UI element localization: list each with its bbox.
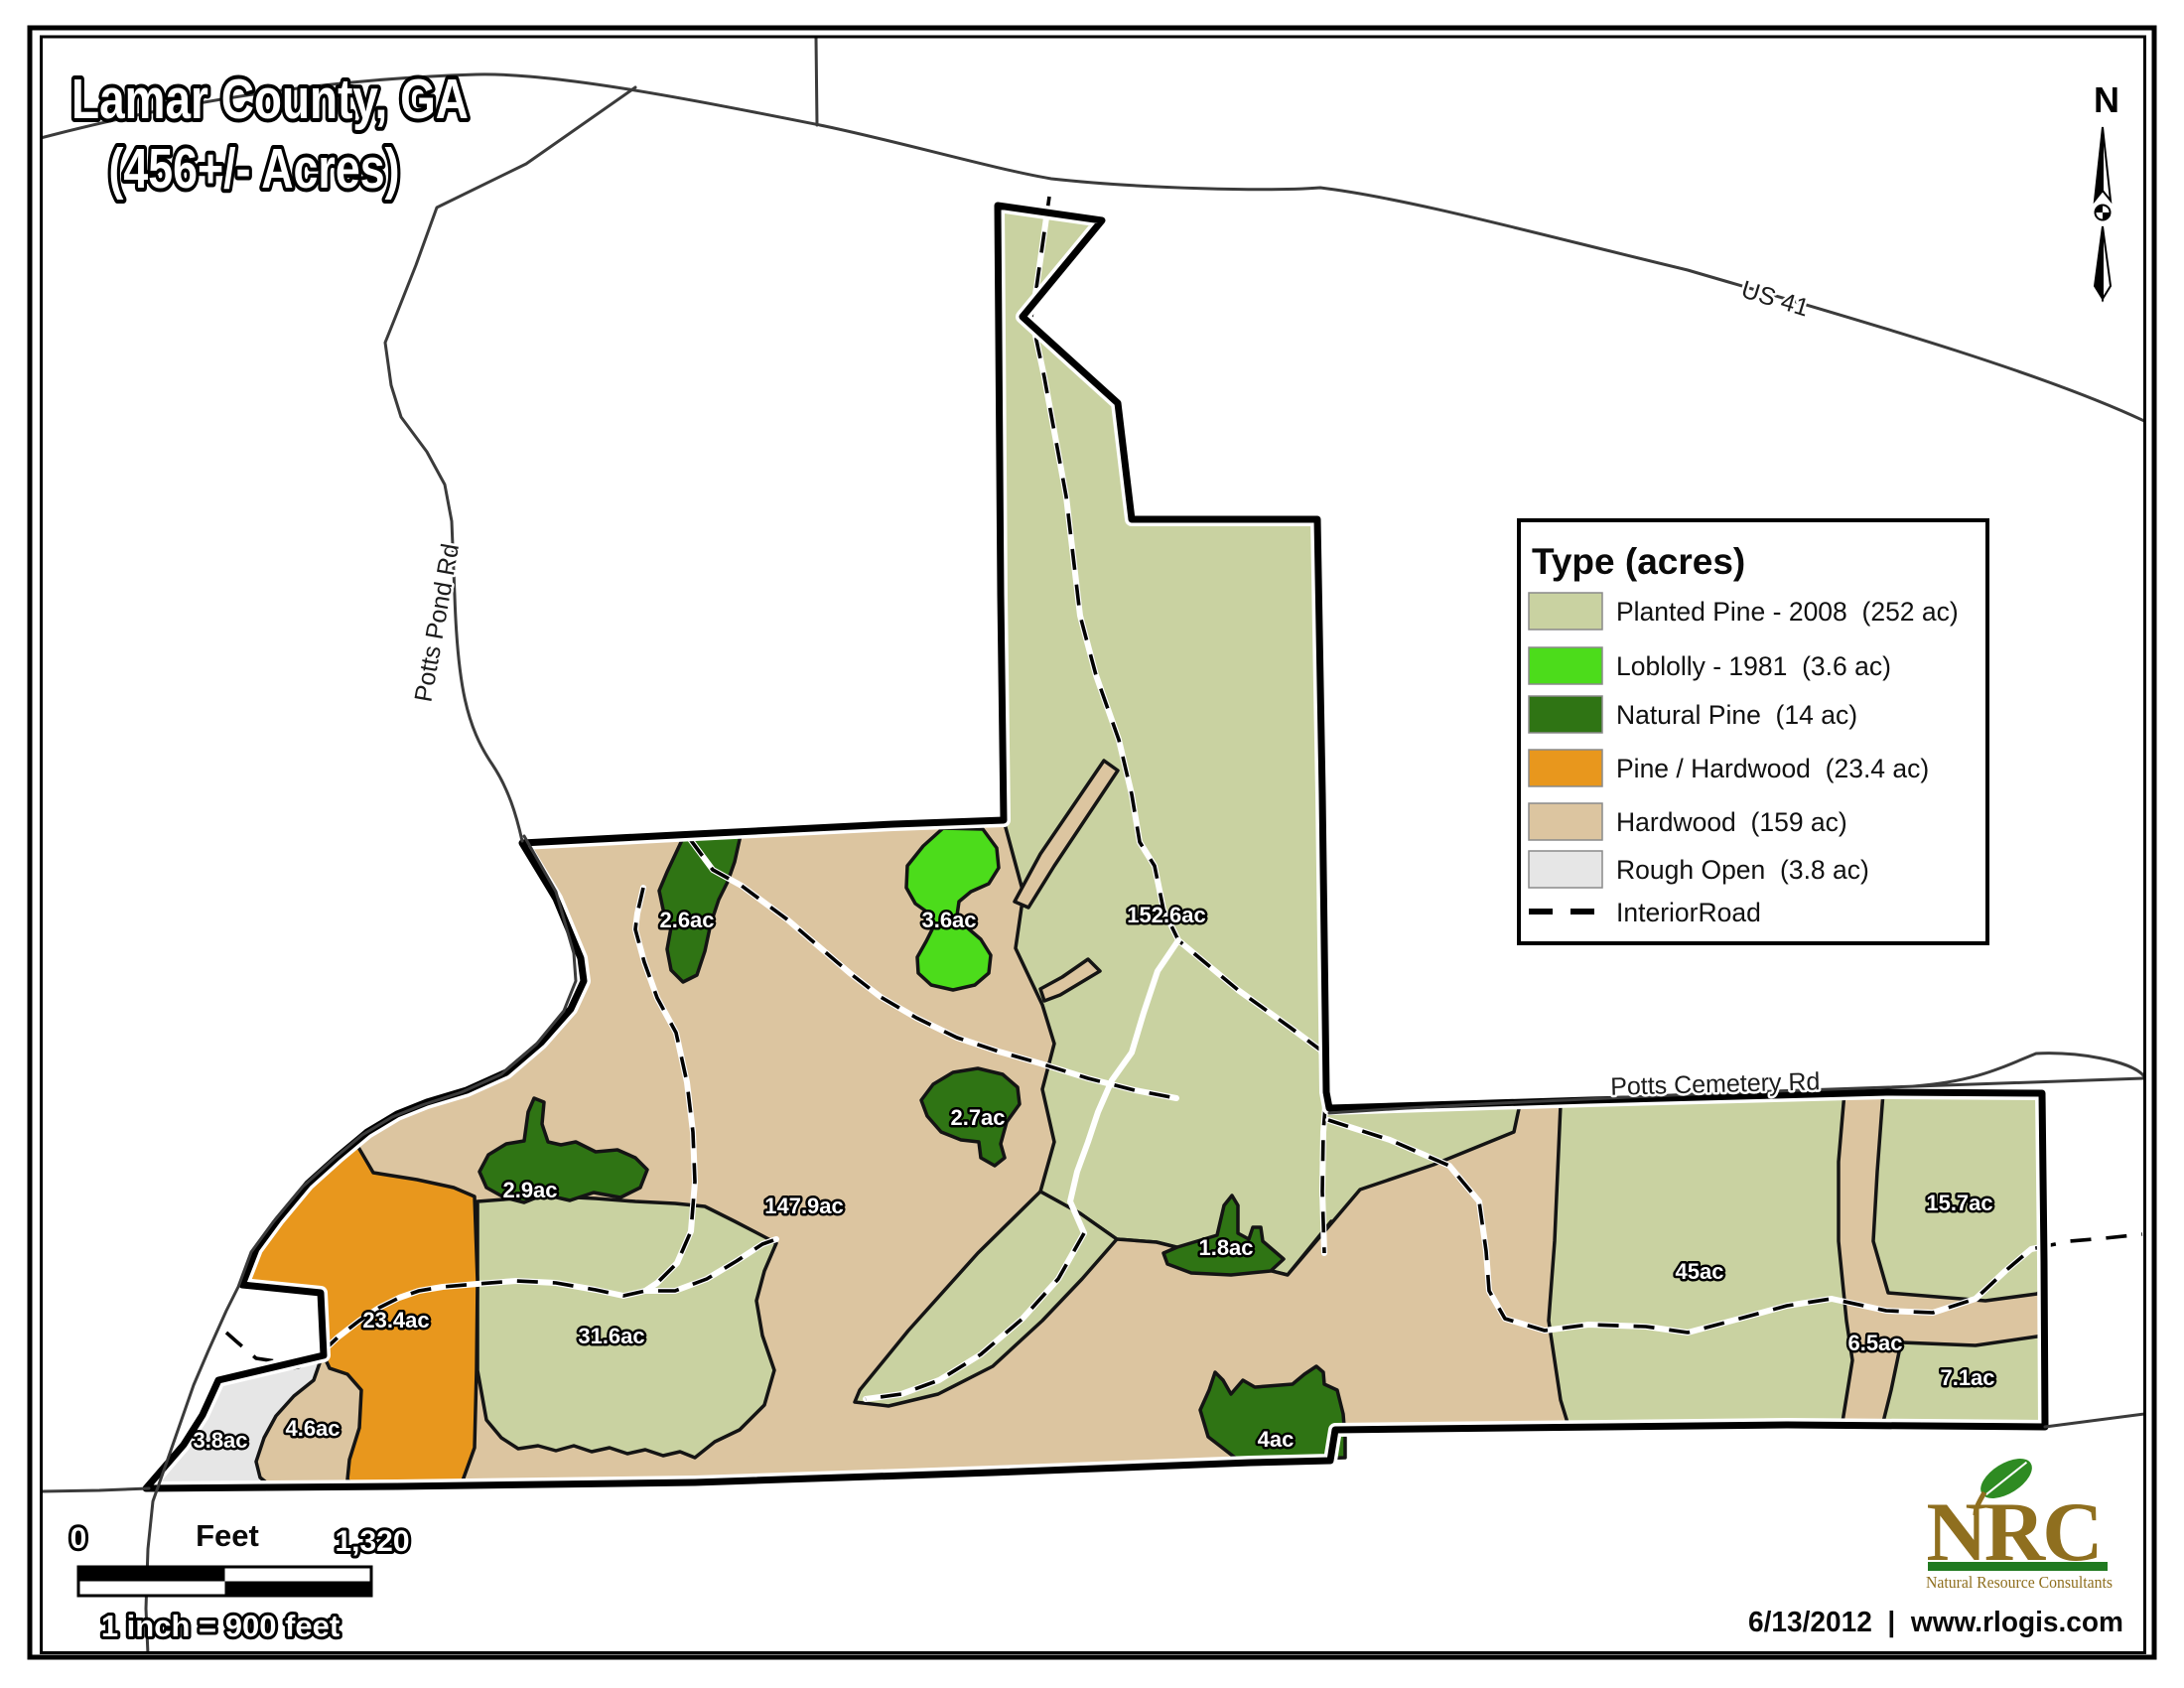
svg-text:Type (acres): Type (acres) [1532,541,1745,582]
svg-text:6/13/2012 | www.rlogis.com: 6/13/2012 | www.rlogis.com [1748,1607,2123,1638]
svg-text:2.6ac: 2.6ac [659,908,714,932]
svg-text:147.9ac: 147.9ac [764,1194,844,1218]
svg-text:Planted Pine - 2008 (252 ac): Planted Pine - 2008 (252 ac) [1616,597,1959,627]
svg-text:45ac: 45ac [1676,1259,1724,1284]
svg-text:1.8ac: 1.8ac [1198,1235,1253,1260]
svg-text:2.7ac: 2.7ac [950,1105,1005,1130]
svg-text:2.9ac: 2.9ac [502,1178,557,1202]
svg-text:31.6ac: 31.6ac [578,1324,644,1348]
svg-text:15.7ac: 15.7ac [1926,1191,1992,1215]
svg-text:4.6ac: 4.6ac [285,1416,340,1441]
svg-text:1,320: 1,320 [335,1525,409,1558]
svg-text:InteriorRoad: InteriorRoad [1616,898,1761,927]
svg-text:3.8ac: 3.8ac [193,1428,247,1453]
svg-text:Loblolly - 1981 (3.6 ac): Loblolly - 1981 (3.6 ac) [1616,651,1891,681]
svg-text:(456+/- Acres): (456+/- Acres) [109,137,400,201]
svg-text:Lamar County, GA: Lamar County, GA [71,68,469,131]
svg-text:23.4ac: 23.4ac [362,1308,429,1333]
svg-text:Feet: Feet [196,1518,259,1553]
svg-text:Hardwood (159 ac): Hardwood (159 ac) [1616,807,1847,837]
svg-text:6.5ac: 6.5ac [1847,1331,1902,1355]
svg-text:4ac: 4ac [1258,1427,1295,1452]
svg-text:0: 0 [70,1522,87,1555]
svg-text:3.6ac: 3.6ac [921,908,976,932]
svg-text:N: N [2094,79,2119,120]
svg-text:Natural Resource Consultants: Natural Resource Consultants [1926,1573,2113,1592]
svg-text:1 inch = 900 feet: 1 inch = 900 feet [101,1609,340,1643]
svg-text:152.6ac: 152.6ac [1127,903,1206,927]
svg-text:Potts Cemetery Rd: Potts Cemetery Rd [1610,1067,1821,1101]
svg-text:Natural Pine (14 ac): Natural Pine (14 ac) [1616,700,1857,730]
svg-text:Pine / Hardwood (23.4 ac): Pine / Hardwood (23.4 ac) [1616,754,1929,783]
svg-text:7.1ac: 7.1ac [1940,1365,1994,1390]
svg-text:Rough Open (3.8 ac): Rough Open (3.8 ac) [1616,855,1869,885]
